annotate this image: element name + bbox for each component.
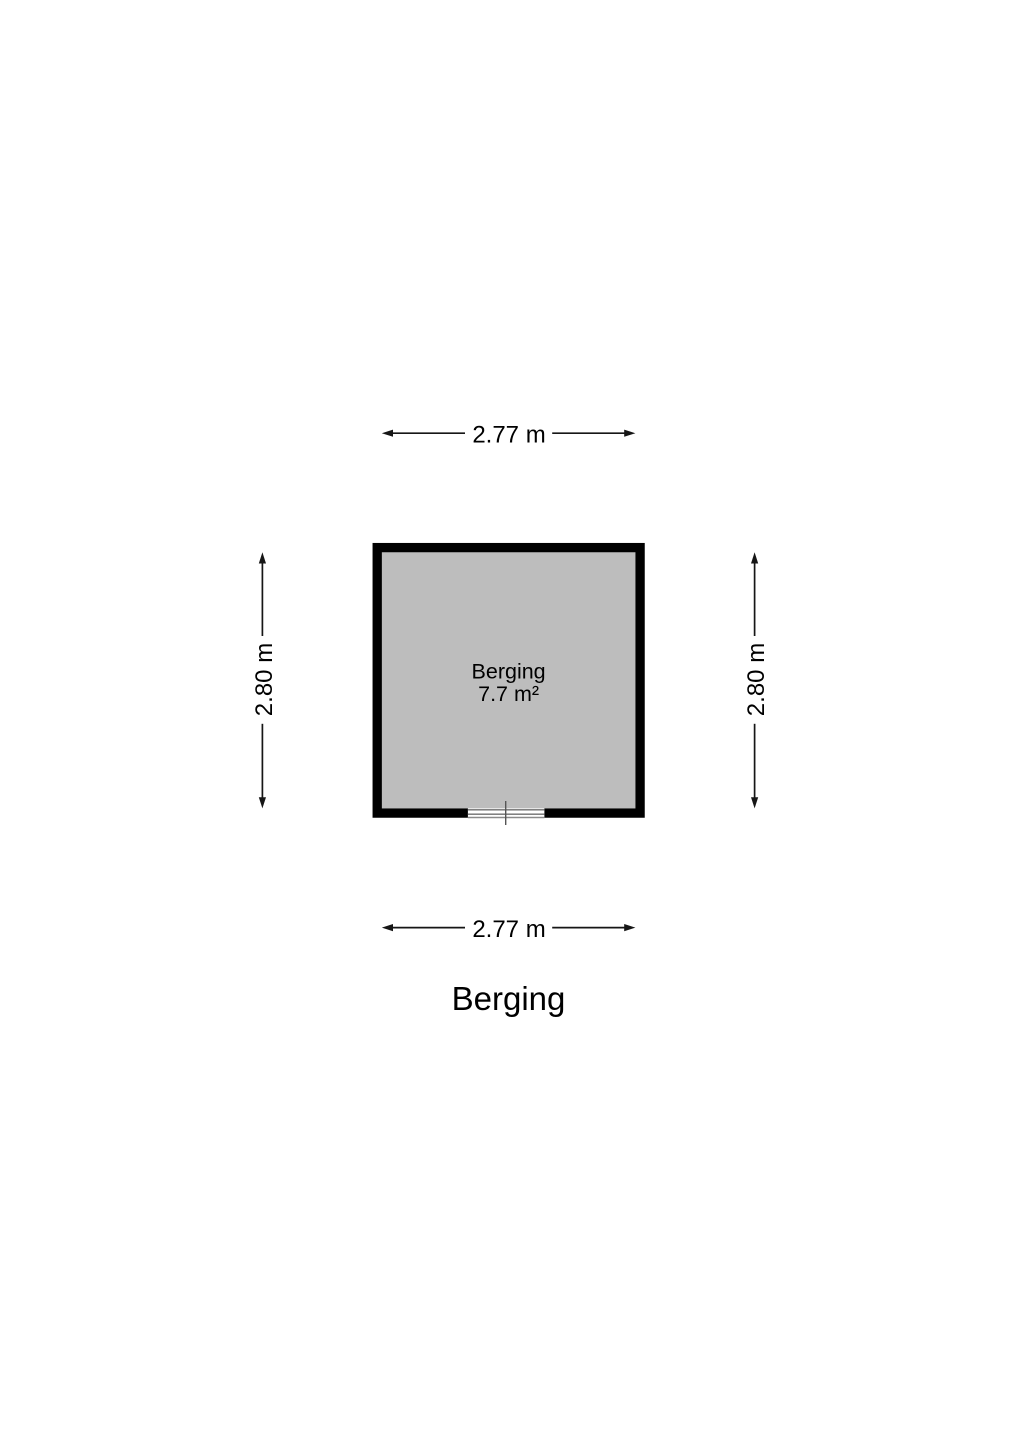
svg-text:2.80 m: 2.80 m xyxy=(251,643,278,716)
svg-text:Berging: Berging xyxy=(472,659,546,683)
svg-text:2.77 m: 2.77 m xyxy=(472,421,545,448)
svg-text:2.77 m: 2.77 m xyxy=(472,916,545,943)
svg-text:Berging: Berging xyxy=(452,980,566,1017)
svg-text:7.7 m²: 7.7 m² xyxy=(478,682,539,706)
svg-text:2.80 m: 2.80 m xyxy=(743,643,770,716)
